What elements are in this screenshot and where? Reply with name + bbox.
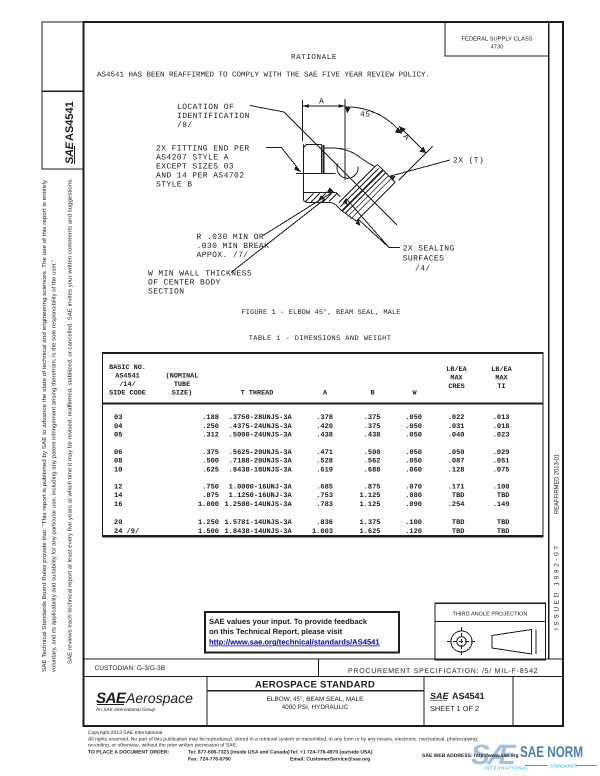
svg-text:2X SEALING: 2X SEALING	[403, 245, 455, 254]
svg-text:.471: .471	[316, 449, 333, 457]
svg-text:APPOX. /7/: APPOX. /7/	[197, 251, 249, 260]
svg-text:.070: .070	[405, 483, 422, 491]
svg-text:1.125: 1.125	[359, 501, 380, 509]
svg-text:SAE values your input. To prov: SAE values your input. To provide feedba…	[209, 617, 368, 626]
svg-text:1.8438-14UNJS-3A: 1.8438-14UNJS-3A	[224, 528, 292, 536]
svg-text:.625: .625	[202, 467, 219, 475]
svg-text:Email: CustomerService@sae.org: Email: CustomerService@sae.org	[290, 757, 370, 763]
svg-text:.050: .050	[448, 449, 465, 457]
svg-text:.3750-28UNJS-3A: .3750-28UNJS-3A	[229, 414, 293, 422]
svg-text:.171: .171	[448, 483, 465, 491]
svg-text:An SAE International Group: An SAE International Group	[95, 707, 156, 713]
svg-text:Tel: 877-606-7323 (inside USA: Tel: 877-606-7323 (inside USA and Canada…	[188, 750, 290, 756]
svg-text:.619: .619	[316, 467, 333, 475]
svg-text:ISSUED 1992-07: ISSUED 1992-07	[554, 546, 561, 630]
svg-text:.375: .375	[202, 449, 219, 457]
svg-text:2X (T): 2X (T)	[453, 157, 484, 166]
svg-text:PROCUREMENT SPECIFICATION: /5/: PROCUREMENT SPECIFICATION: /5/ MIL-F-854…	[348, 667, 538, 675]
svg-text:W: W	[412, 390, 417, 398]
svg-text:.375: .375	[364, 414, 381, 422]
svg-text:.4375-24UNJS-3A: .4375-24UNJS-3A	[229, 423, 293, 431]
svg-text:TBD: TBD	[497, 528, 510, 536]
svg-text:Tel: +1 724-776-4970 (outside: Tel: +1 724-776-4970 (outside USA)	[290, 750, 373, 756]
svg-text:.023: .023	[493, 432, 510, 440]
svg-text:45°: 45°	[360, 111, 376, 120]
svg-text:.075: .075	[493, 467, 510, 475]
svg-text:.7188-20UNJS-3A: .7188-20UNJS-3A	[229, 458, 293, 466]
svg-text:THIRD ANGLE PROJECTION: THIRD ANGLE PROJECTION	[453, 612, 528, 618]
svg-text:CUSTODIAN: G-3/G-3B: CUSTODIAN: G-3/G-3B	[95, 665, 166, 672]
svg-text:R .030 MIN OR: R .030 MIN OR	[197, 233, 265, 242]
svg-text:A: A	[319, 98, 324, 107]
svg-text:.5000-24UNJS-3A: .5000-24UNJS-3A	[229, 432, 293, 440]
svg-text:.050: .050	[405, 432, 422, 440]
svg-text:.022: .022	[448, 414, 465, 422]
svg-text:OF CENTER BODY: OF CENTER BODY	[148, 279, 221, 288]
svg-text:03: 03	[114, 414, 122, 422]
svg-text:voluntary, and its applicabili: voluntary, and its applicability and sui…	[51, 260, 58, 672]
svg-text:.090: .090	[405, 501, 422, 509]
svg-text:ELBOW, 45°, BEAM SEAL, MALE: ELBOW, 45°, BEAM SEAL, MALE	[267, 696, 364, 703]
svg-text:.080: .080	[405, 492, 422, 500]
svg-text:24 /9/: 24 /9/	[114, 527, 139, 536]
svg-text:on this Technical Report, plea: on this Technical Report, please visit	[209, 627, 343, 636]
svg-text:14: 14	[114, 492, 122, 500]
svg-text:SIDE CODE: SIDE CODE	[109, 390, 146, 398]
svg-text:.030 MIN BREAK: .030 MIN BREAK	[197, 242, 270, 251]
svg-text:AS4541 HAS BEEN REAFFIRMED TO: AS4541 HAS BEEN REAFFIRMED TO COMPLY WIT…	[97, 71, 430, 80]
svg-text:TABLE 1 - DIMENSIONS AND WEIGH: TABLE 1 - DIMENSIONS AND WEIGHT	[249, 335, 392, 343]
svg-text:T THREAD: T THREAD	[241, 390, 274, 398]
svg-text:.312: .312	[202, 432, 219, 440]
svg-text:1.003: 1.003	[312, 528, 333, 536]
svg-text:.420: .420	[316, 423, 333, 431]
svg-text:.018: .018	[493, 423, 510, 431]
svg-text:4000 PSI, HYDRAULIC: 4000 PSI, HYDRAULIC	[282, 704, 349, 711]
svg-text:.050: .050	[405, 414, 422, 422]
svg-text:1.000: 1.000	[198, 501, 219, 509]
svg-text:.438: .438	[316, 432, 333, 440]
svg-text:1.625: 1.625	[359, 528, 380, 536]
svg-text:.250: .250	[202, 423, 219, 431]
svg-text:TBD: TBD	[452, 528, 465, 536]
svg-text:1.375: 1.375	[359, 519, 380, 527]
svg-text:LOCATION OF: LOCATION OF	[177, 103, 234, 112]
svg-text:SURFACES: SURFACES	[403, 255, 445, 264]
svg-text:AS4541: AS4541	[64, 101, 76, 141]
svg-text:.100: .100	[493, 483, 510, 491]
svg-text:.783: .783	[316, 501, 333, 509]
svg-text:1.250: 1.250	[198, 519, 219, 527]
svg-text:Copyright 2013 SAE Internation: Copyright 2013 SAE International	[88, 730, 162, 736]
svg-text:.087: .087	[448, 458, 465, 466]
svg-text:1.1250-16UNJ-3A: 1.1250-16UNJ-3A	[229, 492, 293, 500]
svg-text:SECTION: SECTION	[148, 288, 184, 297]
svg-text:.753: .753	[316, 492, 333, 500]
svg-text:.500: .500	[364, 449, 381, 457]
svg-text:TBD: TBD	[452, 492, 465, 500]
svg-text:.128: .128	[448, 467, 465, 475]
svg-text:A: A	[323, 390, 328, 398]
svg-text:05: 05	[114, 432, 122, 440]
svg-text:.060: .060	[405, 467, 422, 475]
svg-text:.040: .040	[448, 432, 465, 440]
svg-text:W MIN WALL THICKNESS: W MIN WALL THICKNESS	[148, 270, 252, 279]
svg-text:.685: .685	[316, 483, 333, 491]
svg-text:FEDERAL SUPPLY CLASS: FEDERAL SUPPLY CLASS	[461, 36, 532, 43]
svg-text:AS4541: AS4541	[115, 373, 139, 381]
svg-text:SAE WEB ADDRESS: http://www.s: SAE WEB ADDRESS: http://www.sae.org	[422, 753, 519, 759]
svg-text:SIZE): SIZE)	[172, 390, 192, 398]
svg-text:http://www.sae.org/technical/s: http://www.sae.org/technical/standards/A…	[209, 638, 380, 647]
svg-text:.050: .050	[405, 449, 422, 457]
svg-text:MAX: MAX	[450, 375, 463, 383]
svg-text:IDENTIFICATION: IDENTIFICATION	[177, 112, 250, 121]
svg-text:TBD: TBD	[497, 519, 510, 527]
svg-text:.031: .031	[448, 423, 465, 431]
svg-text:AEROSPACE STANDARD: AEROSPACE STANDARD	[255, 680, 375, 691]
svg-text:(NOMINAL: (NOMINAL	[166, 373, 199, 381]
svg-text:.5625-20UNJS-3A: .5625-20UNJS-3A	[229, 449, 293, 457]
svg-text:.149: .149	[493, 501, 510, 509]
svg-text:1.5781-14UNJS-3A: 1.5781-14UNJS-3A	[224, 519, 292, 527]
svg-text:04: 04	[114, 423, 122, 431]
svg-text:1.0000-16UNJ-3A: 1.0000-16UNJ-3A	[229, 483, 293, 491]
svg-text:REAFFIRMED 2013-01: REAFFIRMED 2013-01	[554, 454, 561, 514]
svg-text:SAE Technical Standards Board: SAE Technical Standards Board Rules prov…	[41, 180, 48, 672]
svg-text:.188: .188	[202, 414, 219, 422]
svg-text:.029: .029	[493, 449, 510, 457]
svg-text:1.125: 1.125	[359, 492, 380, 500]
svg-text:AS4541: AS4541	[452, 691, 485, 701]
svg-text:SAE reviews each technical rep: SAE reviews each technical report at lea…	[67, 178, 74, 664]
svg-text:.438: .438	[364, 432, 381, 440]
svg-text:SHEET 1 OF 2: SHEET 1 OF 2	[430, 704, 479, 713]
svg-text:MAX: MAX	[495, 375, 508, 383]
svg-text:08: 08	[114, 458, 122, 466]
svg-text:06: 06	[114, 449, 122, 457]
svg-text:.051: .051	[493, 458, 510, 466]
svg-text:LB/EA: LB/EA	[446, 366, 467, 374]
svg-text:TO PLACE A DOCUMENT ORDER:: TO PLACE A DOCUMENT ORDER:	[88, 750, 170, 756]
svg-text:RATIONALE: RATIONALE	[291, 53, 337, 62]
svg-text:.562: .562	[364, 458, 381, 466]
svg-text:TUBE: TUBE	[174, 381, 190, 389]
svg-text:FIGURE 1 - ELBOW 45°, BEAM SEA: FIGURE 1 - ELBOW 45°, BEAM SEAL, MALE	[241, 309, 400, 317]
svg-text:SAE: SAE	[430, 691, 450, 701]
svg-text:1.500: 1.500	[198, 528, 219, 536]
svg-text:.050: .050	[405, 458, 422, 466]
svg-text:EXCEPT SIZES 03: EXCEPT SIZES 03	[156, 163, 234, 172]
svg-text:.528: .528	[316, 458, 333, 466]
svg-text:B: B	[370, 390, 374, 398]
svg-text:.750: .750	[202, 483, 219, 491]
svg-text:.688: .688	[364, 467, 381, 475]
svg-text:.875: .875	[364, 483, 381, 491]
svg-text:.378: .378	[316, 414, 333, 422]
svg-text:.254: .254	[448, 501, 465, 509]
svg-text:STYLE B: STYLE B	[156, 181, 192, 190]
svg-text:4730: 4730	[491, 44, 504, 51]
svg-text:.8438-18UNJS-3A: .8438-18UNJS-3A	[229, 467, 293, 475]
svg-text:12: 12	[114, 483, 122, 491]
svg-text:.375: .375	[364, 423, 381, 431]
svg-text:/4/: /4/	[415, 265, 431, 274]
svg-text:AND 14 PER AS4702: AND 14 PER AS4702	[156, 172, 244, 181]
svg-text:CRES: CRES	[448, 383, 464, 391]
svg-text:BASIC NO.: BASIC NO.	[109, 364, 146, 372]
svg-text:16: 16	[114, 501, 122, 509]
svg-text:STANDARDS: STANDARDS	[550, 764, 577, 769]
svg-text:2X FITTING END PER: 2X FITTING END PER	[156, 145, 250, 154]
svg-text:LB/EA: LB/EA	[491, 366, 512, 374]
svg-text:10: 10	[114, 467, 122, 475]
svg-text:TI: TI	[497, 383, 505, 391]
svg-text:20: 20	[114, 519, 122, 527]
svg-text:.120: .120	[405, 528, 422, 536]
svg-text:Fax: 724-776-0790: Fax: 724-776-0790	[188, 757, 231, 763]
svg-text:.836: .836	[316, 519, 333, 527]
svg-text:/14/: /14/	[119, 381, 135, 389]
svg-text:SAE NORM: SAE NORM	[520, 744, 583, 761]
svg-text:TBD: TBD	[497, 492, 510, 500]
svg-text:A: A	[401, 132, 411, 142]
svg-text:recording, or otherwise, witho: recording, or otherwise, without the pri…	[88, 743, 237, 749]
svg-text:TBD: TBD	[452, 519, 465, 527]
svg-text:.100: .100	[405, 519, 422, 527]
svg-text:.050: .050	[405, 423, 422, 431]
svg-text:.875: .875	[202, 492, 219, 500]
svg-text:Aerospace: Aerospace	[125, 690, 193, 706]
svg-text:1.2500-14UNJS-3A: 1.2500-14UNJS-3A	[224, 501, 292, 509]
svg-text:.500: .500	[202, 458, 219, 466]
svg-text:AS4207 STYLE A: AS4207 STYLE A	[156, 154, 229, 163]
svg-text:.013: .013	[493, 414, 510, 422]
svg-text:/8/: /8/	[177, 121, 193, 130]
svg-text:INTERNATIONAL: INTERNATIONAL	[484, 766, 529, 771]
